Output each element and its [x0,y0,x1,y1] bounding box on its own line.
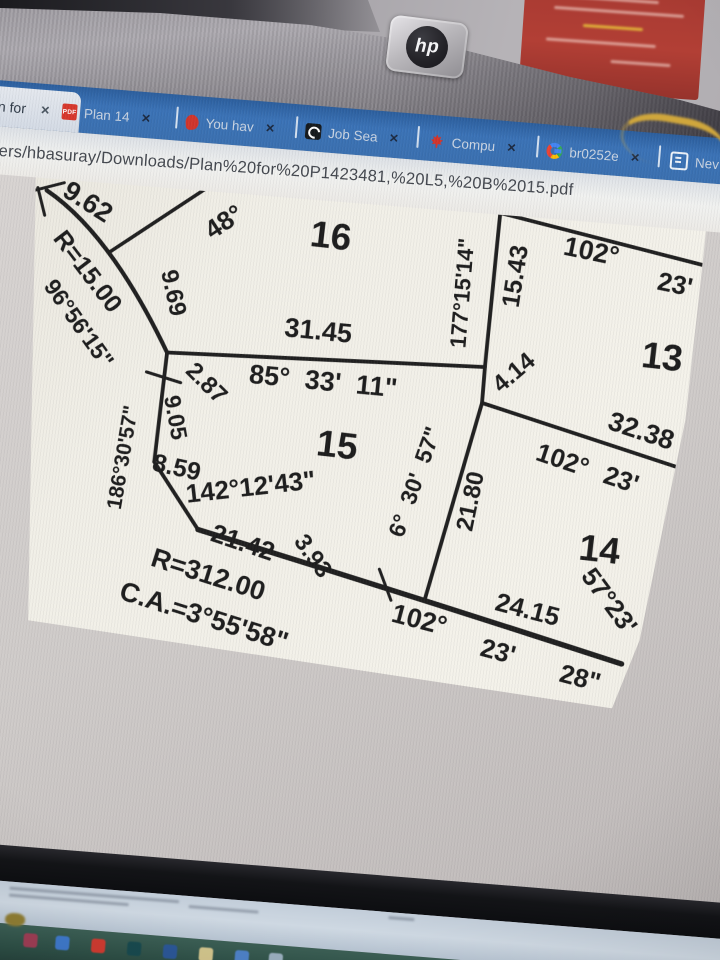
lot-14: 14 [577,527,623,573]
brg-102-top: 102° [561,231,622,272]
laptop-notification-blob [5,912,26,927]
tab-label: an for [0,98,27,117]
tab-close-icon[interactable]: × [141,109,151,127]
tab-close-icon[interactable]: × [40,101,50,119]
dist-31-45: 31.45 [283,312,353,348]
tab-close-icon[interactable]: × [265,119,275,137]
tab-separator [175,106,179,128]
taskbar-app-icon[interactable] [162,944,177,959]
brg-6-30-57: 6° 30' 57" [383,423,446,540]
card-text-line [554,6,684,18]
google-icon-bar [554,149,561,154]
dist-15-43: 15.43 [497,243,534,309]
dist-21-80: 21.80 [451,469,490,533]
card-text-line [583,24,643,31]
tab-separator [295,116,299,138]
brg-142-12-43: 142°12'43" [184,464,317,508]
brg-102-mid: 102° [532,437,593,483]
maple-leaf-icon [428,133,445,150]
taskbar-app-icon[interactable] [127,941,142,956]
tab-close-icon[interactable]: × [506,139,516,157]
tab-label: Compu [451,135,496,153]
screen: an for × PDF Plan 14 × You hav × Job Sea… [0,10,720,960]
dist-9-05: 9.05 [159,393,193,442]
lot-16: 16 [308,213,354,258]
brg-23-bottom: 23' [477,632,519,670]
brg-23-mid: 23' [600,460,643,500]
tab-you-have[interactable]: You hav × [184,103,276,146]
card-text-line [546,37,656,48]
brg-48: 48° [199,198,248,245]
brg-177-15-14: 177°15'14" [445,237,479,349]
tab-label: br0252e [569,145,620,164]
brg-57-23: 57°23' [575,562,643,640]
lot-13: 13 [640,334,686,379]
tab-close-icon[interactable]: × [389,129,399,147]
dist-4-14: 4.14 [487,347,541,398]
tab-label: Plan 14 [83,106,130,125]
google-icon [546,142,563,159]
photo-scene: hp an for × PDF Plan 14 × You hav × [0,0,720,960]
taskbar-app-icon[interactable] [234,950,249,960]
dist-9-69: 9.69 [155,267,191,318]
taskbar-app-icon[interactable] [91,938,106,953]
brg-28-bottom: 28" [557,658,604,697]
job-site-glyph [306,124,323,141]
brg-186-30-57: 186°30'57" [103,404,143,511]
tab-separator [416,126,420,148]
red-logo-icon [185,114,199,130]
pdf-icon: PDF [61,103,77,120]
lot-15: 15 [314,422,360,467]
brg-23-top: 23' [655,266,695,302]
taskbar-app-icon[interactable] [198,947,213,960]
tab-label: Job Sea [328,125,379,144]
dist-2-87: 2.87 [180,357,232,409]
tab-job-search[interactable]: Job Sea × [304,113,400,156]
card-text-line [539,0,659,4]
dist-21-42: 21.42 [207,518,278,567]
tab-plan-14[interactable]: PDF Plan 14 × [61,93,152,136]
tab-label: You hav [205,115,254,134]
tab-computers[interactable]: Compu × [427,123,517,166]
tab-separator [536,136,540,158]
laptop-text-line [388,916,414,921]
job-site-icon [305,123,322,140]
dist-3-93: 3.93 [288,529,337,583]
laptop-text-line [189,905,259,914]
brg-85-33-11: 85° 33' 11" [248,359,399,403]
taskbar-app-icon[interactable] [23,933,38,948]
taskbar-app-icon[interactable] [55,935,70,950]
taskbar-app-icon[interactable] [268,953,283,960]
